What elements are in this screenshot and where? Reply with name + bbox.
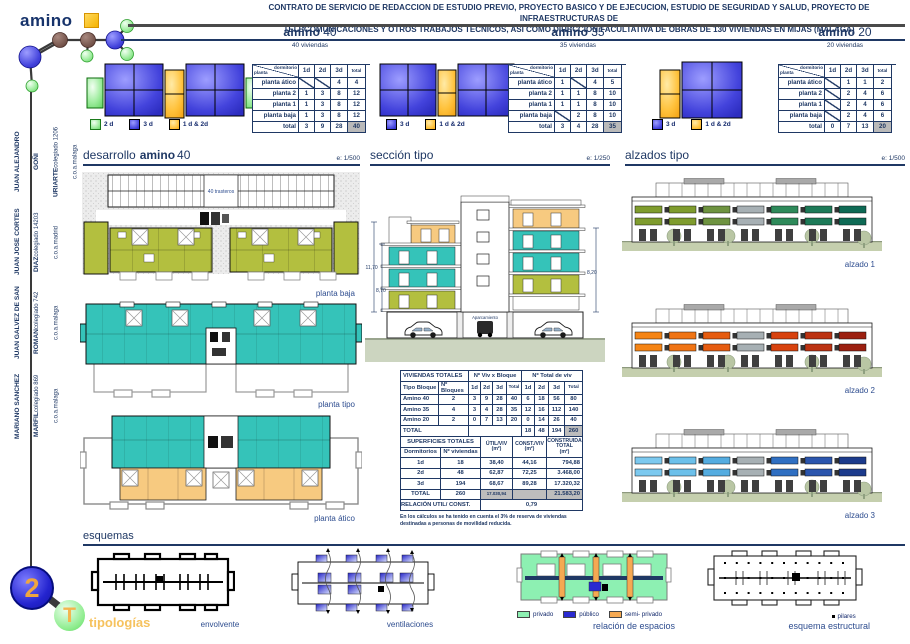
table-cell: 8 bbox=[331, 100, 348, 111]
table-cell: 4 bbox=[439, 405, 469, 416]
table-cell: 794,88 bbox=[547, 458, 583, 469]
table-cell: 9 bbox=[481, 395, 493, 406]
table-cell: 6 bbox=[522, 395, 535, 406]
legend-label: 1 d & 2d bbox=[183, 121, 208, 128]
column-header: 1d bbox=[299, 65, 315, 78]
column-header: total bbox=[348, 65, 366, 78]
dim-label: 11,70 bbox=[366, 265, 378, 271]
brand-number: 40 bbox=[177, 148, 190, 162]
table-cell: 13 bbox=[857, 122, 874, 133]
table-corner: dormitorioplanta bbox=[779, 65, 825, 78]
table-cell: SUPERFICIES TOTALES bbox=[401, 437, 481, 448]
table-cell bbox=[825, 78, 841, 89]
table-cell: 13 bbox=[493, 416, 507, 427]
row-label: planta baja bbox=[779, 111, 825, 122]
plan-label-planta-tipo: planta tipo bbox=[155, 400, 355, 409]
legend-label: 3 d bbox=[143, 121, 152, 128]
table-cell: 8 bbox=[587, 111, 604, 122]
esquema-espacios-drawing bbox=[515, 546, 673, 608]
table-cell: 1 bbox=[555, 100, 571, 111]
table-cell: 56 bbox=[549, 395, 565, 406]
table-cell: 1 bbox=[299, 89, 315, 100]
alzado-3-label: alzado 3 bbox=[625, 511, 875, 520]
table-cell: 12 bbox=[348, 111, 366, 122]
planta-tipo-drawing bbox=[80, 298, 362, 398]
table-cell: 4 bbox=[571, 122, 587, 133]
table-cell: 28 bbox=[493, 405, 507, 416]
table-cell: 12 bbox=[348, 89, 366, 100]
table-cell: 9 bbox=[315, 122, 331, 133]
table-cell: VIVIENDAS TOTALES bbox=[401, 371, 469, 382]
legend-amino-40: 2 d 3 d 1 d & 2d bbox=[90, 119, 224, 130]
table-cell bbox=[825, 89, 841, 100]
table-cell: 12 bbox=[348, 100, 366, 111]
superficies-totales-table: SUPERFICIES TOTALESÚTIL/VIV (m²)CONST./V… bbox=[400, 436, 583, 511]
table-cell: 28 bbox=[493, 395, 507, 406]
table-cell: 2 bbox=[841, 89, 857, 100]
table-cell: Total bbox=[507, 382, 522, 395]
column-subtitle: 35 viviendas bbox=[518, 42, 638, 49]
table-cell: 40 bbox=[565, 416, 583, 427]
viviendas-totales-table: VIVIENDAS TOTALESNº Viv x BloqueNº Total… bbox=[400, 370, 583, 437]
planta-atico-drawing bbox=[80, 412, 362, 512]
swatch-1d2d bbox=[425, 119, 436, 130]
row-label: planta baja bbox=[253, 111, 299, 122]
column-header: total bbox=[874, 65, 892, 78]
table-cell: 2d bbox=[481, 382, 493, 395]
column-header: 1d bbox=[825, 65, 841, 78]
pilares-legend: pilares bbox=[832, 613, 856, 620]
row-label: planta 2 bbox=[779, 89, 825, 100]
table-cell: CONSTRUIDA TOTAL (m²) bbox=[547, 437, 583, 458]
table-cell: 3 bbox=[315, 100, 331, 111]
swatch-2d bbox=[90, 119, 101, 130]
architect-detail: colegiado 14203 c.o.a.madrid bbox=[34, 212, 59, 258]
swatch-3d bbox=[652, 119, 663, 130]
table-cell: 48 bbox=[441, 469, 481, 480]
row-label: planta 2 bbox=[509, 89, 555, 100]
table-cell bbox=[825, 111, 841, 122]
scale-label: e: 1/250 bbox=[587, 155, 611, 162]
brand-word: amino bbox=[551, 25, 588, 39]
table-cell bbox=[513, 490, 547, 501]
legend-item: privado bbox=[517, 611, 553, 618]
column-header: 2d bbox=[315, 65, 331, 78]
legend-item: 3 d bbox=[129, 119, 152, 130]
table-cell bbox=[571, 78, 587, 89]
legend-label: semi- privado bbox=[625, 611, 662, 618]
legend-label: 3 d bbox=[666, 121, 675, 128]
column-header: 2d bbox=[571, 65, 587, 78]
corner-top-label: dormitorio bbox=[274, 66, 297, 71]
alzado-2-drawing bbox=[622, 301, 882, 381]
swatch-1d2d bbox=[691, 119, 702, 130]
row-label: total bbox=[253, 122, 299, 133]
table-cell: 260 bbox=[441, 490, 481, 501]
table-cell: 10 bbox=[604, 89, 622, 100]
swatch-semiprivado bbox=[609, 611, 622, 618]
column-header: 3d bbox=[587, 65, 604, 78]
table-cell: 3 bbox=[555, 122, 571, 133]
unit-table-amino-35: dormitorioplanta1d2d3dtotalplanta ático1… bbox=[508, 64, 626, 133]
table-cell: 2 bbox=[439, 416, 469, 427]
column-header: 3d bbox=[857, 65, 874, 78]
corner-top-label: dormitorio bbox=[800, 66, 823, 71]
dim-label: 8,70 bbox=[376, 288, 386, 294]
table-cell: 35 bbox=[507, 405, 522, 416]
legend-item: 1 d & 2d bbox=[425, 119, 464, 130]
legend-item: 1 d & 2d bbox=[691, 119, 730, 130]
table-cell: 1 bbox=[299, 111, 315, 122]
esquema-estructural-label: esquema estructural bbox=[770, 621, 870, 631]
table-cell: 2 bbox=[439, 395, 469, 406]
table-cell: 8 bbox=[587, 89, 604, 100]
table-cell: 4 bbox=[857, 89, 874, 100]
table-cell: 89,28 bbox=[513, 479, 547, 490]
unit-table-amino-40: dormitorioplanta1d2d3dtotalplanta ático4… bbox=[252, 64, 370, 133]
row-label: planta 1 bbox=[253, 100, 299, 111]
table-corner: dormitorioplanta bbox=[509, 65, 555, 78]
legend-label: 1 d & 2d bbox=[705, 121, 730, 128]
table-cell: 20 bbox=[874, 122, 892, 133]
column-subtitle: 40 viviendas bbox=[250, 42, 370, 49]
table-cell: 40 bbox=[348, 122, 366, 133]
legend-item: público bbox=[563, 611, 599, 618]
brand-number: 35 bbox=[591, 25, 604, 39]
table-cell: 2d bbox=[535, 382, 549, 395]
table-cell: Dormitorios bbox=[401, 448, 441, 459]
table-cell: RELACIÓN UTIL/ CONST. bbox=[401, 500, 481, 511]
alzado-1-label: alzado 1 bbox=[625, 260, 875, 269]
table-cell: 4 bbox=[481, 405, 493, 416]
logo-orange-square bbox=[84, 13, 99, 28]
row-label: planta baja bbox=[509, 111, 555, 122]
table-cell: 3 bbox=[315, 89, 331, 100]
pilar-dot-icon bbox=[832, 615, 835, 618]
brand-word: amino bbox=[283, 25, 320, 39]
section-title: sección tipo bbox=[370, 148, 433, 162]
table-cell: 1 bbox=[571, 89, 587, 100]
row-label: planta 2 bbox=[253, 89, 299, 100]
legend-item: 3 d bbox=[652, 119, 675, 130]
sheet-number-badge: 2 bbox=[10, 566, 54, 610]
column-header: total bbox=[604, 65, 622, 78]
table-cell: Nº Viv x Bloque bbox=[469, 371, 522, 382]
column-header-amino-20: amino20 bbox=[785, 25, 905, 39]
table-cell: Nº Total de viv bbox=[522, 371, 583, 382]
column-header: 1d bbox=[555, 65, 571, 78]
table-cell: 16 bbox=[535, 405, 549, 416]
esquema-envolvente-drawing bbox=[90, 550, 235, 614]
table-cell: 3.468,00 bbox=[547, 469, 583, 480]
architect-1: JUAN ALEJANDRO GOÑI URIARTEcolegiado 120… bbox=[8, 126, 32, 198]
unit-mix-diagram-amino-40 bbox=[86, 60, 262, 120]
title-line-1: CONTRATO DE SERVICIO DE REDACCION DE EST… bbox=[233, 3, 905, 25]
table-cell: 26 bbox=[549, 416, 565, 427]
swatch-publico bbox=[563, 611, 576, 618]
table-cell: 5 bbox=[604, 78, 622, 89]
table-cell: 6 bbox=[874, 100, 892, 111]
table-cell: 194 bbox=[441, 479, 481, 490]
table-cell: 1 bbox=[555, 89, 571, 100]
table-cell: 3 bbox=[469, 395, 481, 406]
esquema-espacios-label: relación de espacios bbox=[565, 621, 675, 631]
amino-logo-text: amino bbox=[20, 11, 73, 31]
table-cell: 28 bbox=[587, 122, 604, 133]
table-cell: 28 bbox=[331, 122, 348, 133]
column-subtitle: 20 viviendas bbox=[785, 42, 905, 49]
alzado-3-drawing bbox=[622, 426, 882, 506]
table-cell: 1 bbox=[555, 78, 571, 89]
alzado-2-label: alzado 2 bbox=[625, 386, 875, 395]
column-header: 3d bbox=[331, 65, 348, 78]
table-cell bbox=[315, 78, 331, 89]
unit-mix-diagram-amino-35 bbox=[378, 60, 518, 120]
row-label: planta ático bbox=[509, 78, 555, 89]
table-cell: 4 bbox=[857, 100, 874, 111]
table-cell: 21.583,20 bbox=[547, 490, 583, 501]
table-cell: 62,87 bbox=[481, 469, 513, 480]
row-label: planta 1 bbox=[779, 100, 825, 111]
section-header-seccion: sección tipo e: 1/250 bbox=[370, 148, 610, 166]
section-header-desarrollo: desarrolloamino40 e: 1/500 bbox=[83, 148, 360, 166]
table-cell: 1d bbox=[522, 382, 535, 395]
corner-bottom-label: planta bbox=[780, 71, 794, 76]
dim-label: 8,20 bbox=[587, 270, 597, 276]
table-cell: 4 bbox=[348, 78, 366, 89]
table-cell: Nº viviendas bbox=[441, 448, 481, 459]
table-cell: 35 bbox=[604, 122, 622, 133]
legend-label: público bbox=[579, 611, 599, 618]
tipologias-badge: T bbox=[54, 600, 85, 631]
table-cell: 68,67 bbox=[481, 479, 513, 490]
table-cell: 20 bbox=[507, 416, 522, 427]
table-cell: 2 bbox=[841, 111, 857, 122]
swatch-3d bbox=[386, 119, 397, 130]
table-cell: 18 bbox=[535, 395, 549, 406]
presentation-board: amino CONTRATO DE SERVICIO DE REDACCION … bbox=[0, 0, 910, 644]
plan-label-planta-baja: planta baja bbox=[155, 289, 355, 298]
table-cell: 1d bbox=[401, 458, 441, 469]
brand-word: amino bbox=[140, 148, 175, 162]
table-cell: 2 bbox=[841, 100, 857, 111]
column-header-amino-35: amino35 bbox=[518, 25, 638, 39]
table-cell: 3 bbox=[315, 111, 331, 122]
table-cell: 3d bbox=[493, 382, 507, 395]
table-cell: 4 bbox=[857, 111, 874, 122]
row-label: total bbox=[509, 122, 555, 133]
section-header-alzados: alzados tipo e: 1/500 bbox=[625, 148, 905, 166]
table-cell: 8 bbox=[331, 111, 348, 122]
legend-label: 2 d bbox=[104, 121, 113, 128]
table-cell: 38,40 bbox=[481, 458, 513, 469]
table-cell: 12 bbox=[522, 405, 535, 416]
seccion-tipo-drawing: Aparcamiento bbox=[365, 172, 605, 362]
esquema-estructural-drawing bbox=[706, 548, 864, 610]
table-cell: 72,25 bbox=[513, 469, 547, 480]
legend-item: semi- privado bbox=[609, 611, 662, 618]
table-cell: 10 bbox=[604, 111, 622, 122]
table-cell: 8 bbox=[587, 100, 604, 111]
table-cell: 2d bbox=[401, 469, 441, 480]
table-cell: 2 bbox=[571, 111, 587, 122]
row-label: planta ático bbox=[779, 78, 825, 89]
plan-label-planta-atico: planta ático bbox=[155, 514, 355, 523]
column-header-amino-40: amino40 bbox=[250, 25, 370, 39]
section-title: desarrolloamino40 bbox=[83, 148, 190, 162]
table-cell bbox=[555, 111, 571, 122]
legend-item: 2 d bbox=[90, 119, 113, 130]
architect-3: JUAN GALVEZ DE SAN ROMANcolegiado 742 c.… bbox=[8, 285, 32, 361]
table-cell: 1 bbox=[571, 100, 587, 111]
table-cell: 2 bbox=[874, 78, 892, 89]
unit-mix-diagram-amino-20 bbox=[658, 58, 750, 120]
table-cell: 1 bbox=[841, 78, 857, 89]
table-footnote: En los cálculos se ha tenido en cuenta e… bbox=[400, 514, 582, 528]
trasteros-label: 40 trasteros bbox=[208, 189, 235, 195]
brand-number: 20 bbox=[858, 25, 871, 39]
corner-bottom-label: planta bbox=[510, 71, 524, 76]
table-cell: 14 bbox=[535, 416, 549, 427]
corner-top-label: dormitorio bbox=[530, 66, 553, 71]
table-cell: Tipo Bloque bbox=[401, 382, 439, 395]
table-cell: 112 bbox=[549, 405, 565, 416]
table-cell: Amino 35 bbox=[401, 405, 439, 416]
table-cell: 140 bbox=[565, 405, 583, 416]
parking-label: Aparcamiento bbox=[472, 315, 499, 320]
table-cell: 4 bbox=[331, 78, 348, 89]
brand-number: 40 bbox=[323, 25, 336, 39]
swatch-privado bbox=[517, 611, 530, 618]
esquema-ventilaciones-label: ventilaciones bbox=[355, 620, 465, 629]
table-cell: CONST./VIV (m²) bbox=[513, 437, 547, 458]
table-cell: 3 bbox=[469, 405, 481, 416]
scale-label: e: 1/500 bbox=[882, 155, 906, 162]
table-cell: ÚTIL/VIV (m²) bbox=[481, 437, 513, 458]
table-cell bbox=[299, 78, 315, 89]
swatch-1d2d bbox=[169, 119, 180, 130]
table-cell: 3d bbox=[549, 382, 565, 395]
esquema-ventilaciones-drawing bbox=[288, 548, 438, 616]
section-title: alzados tipo bbox=[625, 148, 689, 162]
table-cell: 10 bbox=[604, 100, 622, 111]
legend-amino-35: 3 d 1 d & 2d bbox=[386, 119, 481, 130]
table-cell: 0 bbox=[522, 416, 535, 427]
row-label: planta ático bbox=[253, 78, 299, 89]
table-cell: 4 bbox=[587, 78, 604, 89]
table-cell: Total bbox=[565, 382, 583, 395]
table-cell bbox=[825, 100, 841, 111]
planta-baja-drawing: 40 trasteros bbox=[80, 170, 362, 288]
legend-label: 3 d bbox=[400, 121, 409, 128]
table-cell: 44,16 bbox=[513, 458, 547, 469]
table-cell: 7 bbox=[841, 122, 857, 133]
table-cell: 1 bbox=[857, 78, 874, 89]
legend-item: 1 d & 2d bbox=[169, 119, 208, 130]
table-cell: 17.320,32 bbox=[547, 479, 583, 490]
scale-label: e: 1/500 bbox=[337, 155, 361, 162]
table-cell: 7 bbox=[481, 416, 493, 427]
swatch-3d bbox=[129, 119, 140, 130]
table-cell: 18 bbox=[441, 458, 481, 469]
table-cell: 1d bbox=[469, 382, 481, 395]
table-cell: 8 bbox=[331, 89, 348, 100]
header-rule-navy bbox=[121, 39, 905, 41]
table-cell: 0 bbox=[825, 122, 841, 133]
legend-item: 3 d bbox=[386, 119, 409, 130]
table-cell: 6 bbox=[874, 89, 892, 100]
table-cell: Amino 40 bbox=[401, 395, 439, 406]
corner-bottom-label: planta bbox=[254, 71, 268, 76]
table-corner: dormitorioplanta bbox=[253, 65, 299, 78]
unit-table-amino-20: dormitorioplanta1d2d3dtotalplanta ático1… bbox=[778, 64, 896, 133]
esquema-envolvente-label: envolvente bbox=[170, 620, 270, 629]
table-cell: 0,79 bbox=[481, 500, 583, 511]
table-cell: TOTAL bbox=[401, 490, 441, 501]
esquemas-header: esquemas bbox=[83, 530, 905, 546]
table-cell: 0 bbox=[469, 416, 481, 427]
espacios-legend: privado público semi- privado bbox=[517, 611, 672, 618]
row-label: total bbox=[779, 122, 825, 133]
table-cell: Amino 20 bbox=[401, 416, 439, 427]
table-cell: 17.030,94 bbox=[481, 490, 513, 501]
legend-label: pilares bbox=[838, 613, 856, 620]
legend-label: privado bbox=[533, 611, 553, 618]
legend-label: 1 d & 2d bbox=[439, 121, 464, 128]
alzado-1-drawing bbox=[622, 175, 882, 255]
architect-4: MARIANO SANCHEZ MARFILcolegiado 869 c.o.… bbox=[8, 368, 32, 444]
legend-amino-20: 3 d 1 d & 2d bbox=[652, 119, 747, 130]
brand-word: amino bbox=[818, 25, 855, 39]
table-cell: 3 bbox=[299, 122, 315, 133]
row-label: planta 1 bbox=[509, 100, 555, 111]
column-header: 2d bbox=[841, 65, 857, 78]
table-cell: Nº Bloques bbox=[439, 382, 469, 395]
table-cell: 40 bbox=[507, 395, 522, 406]
table-cell: 80 bbox=[565, 395, 583, 406]
architect-2: JUAN JOSE CORTES DIAZcolegiado 14203 c.o… bbox=[8, 204, 32, 280]
table-cell: 3d bbox=[401, 479, 441, 490]
tipologias-label: tipologías bbox=[89, 615, 150, 630]
table-cell: 6 bbox=[874, 111, 892, 122]
table-cell: 1 bbox=[299, 100, 315, 111]
